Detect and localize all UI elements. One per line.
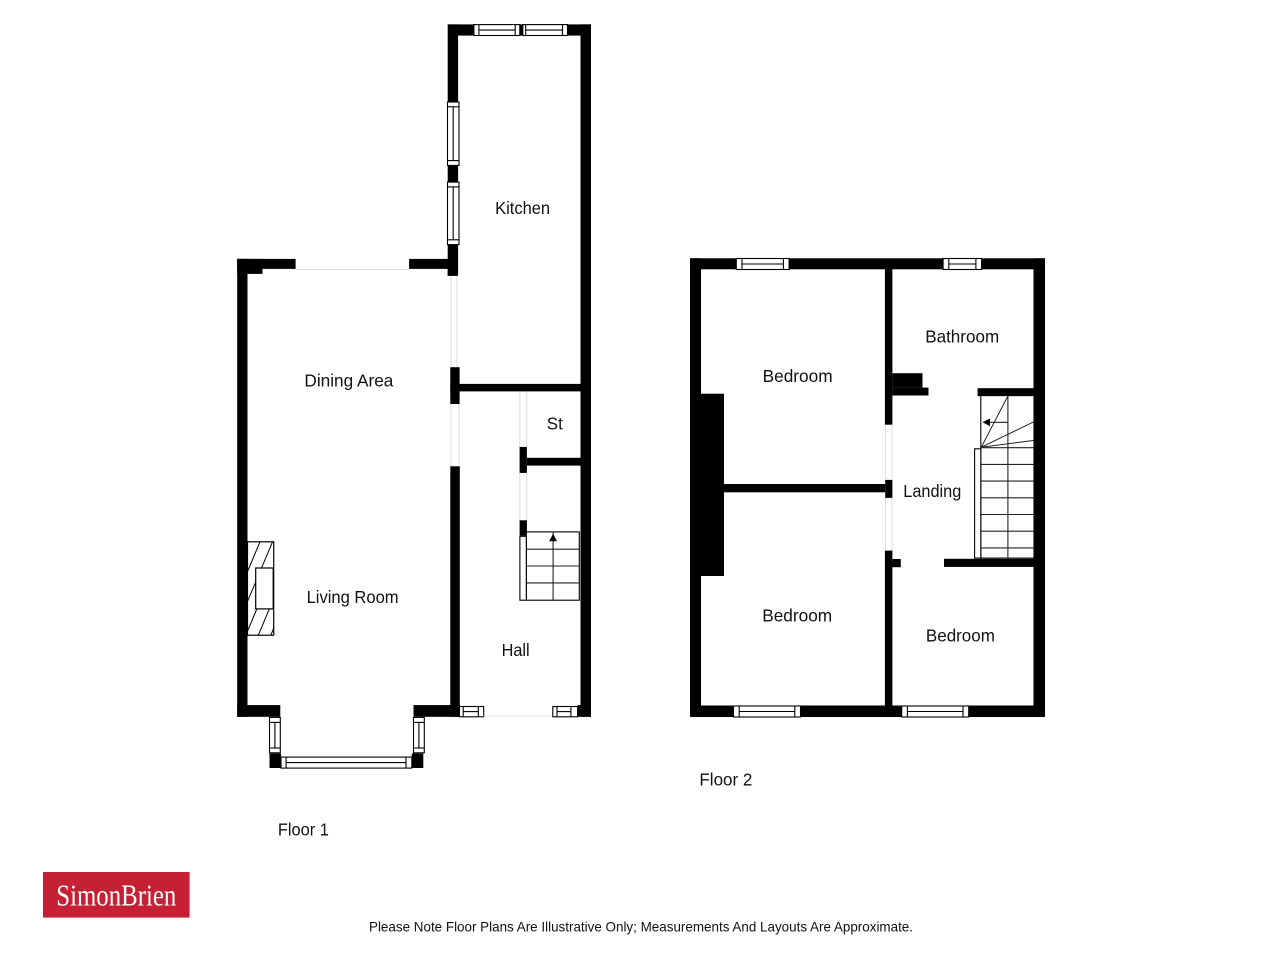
svg-text:Dining Area: Dining Area	[304, 370, 393, 390]
svg-text:Bedroom: Bedroom	[762, 606, 832, 626]
svg-text:Bedroom: Bedroom	[763, 366, 833, 386]
svg-text:Bedroom: Bedroom	[926, 626, 995, 646]
svg-text:Floor 1: Floor 1	[278, 820, 329, 840]
svg-text:Please Note Floor Plans Are Il: Please Note Floor Plans Are Illustrative…	[369, 919, 913, 935]
svg-text:Floor 2: Floor 2	[699, 770, 752, 790]
svg-text:Bathroom: Bathroom	[925, 326, 999, 346]
svg-text:St: St	[547, 414, 563, 434]
svg-text:Hall: Hall	[502, 640, 530, 660]
svg-text:Kitchen: Kitchen	[495, 198, 550, 218]
svg-text:Landing: Landing	[903, 481, 961, 501]
svg-text:SimonBrien: SimonBrien	[56, 878, 176, 913]
svg-text:Living Room: Living Room	[307, 587, 399, 607]
